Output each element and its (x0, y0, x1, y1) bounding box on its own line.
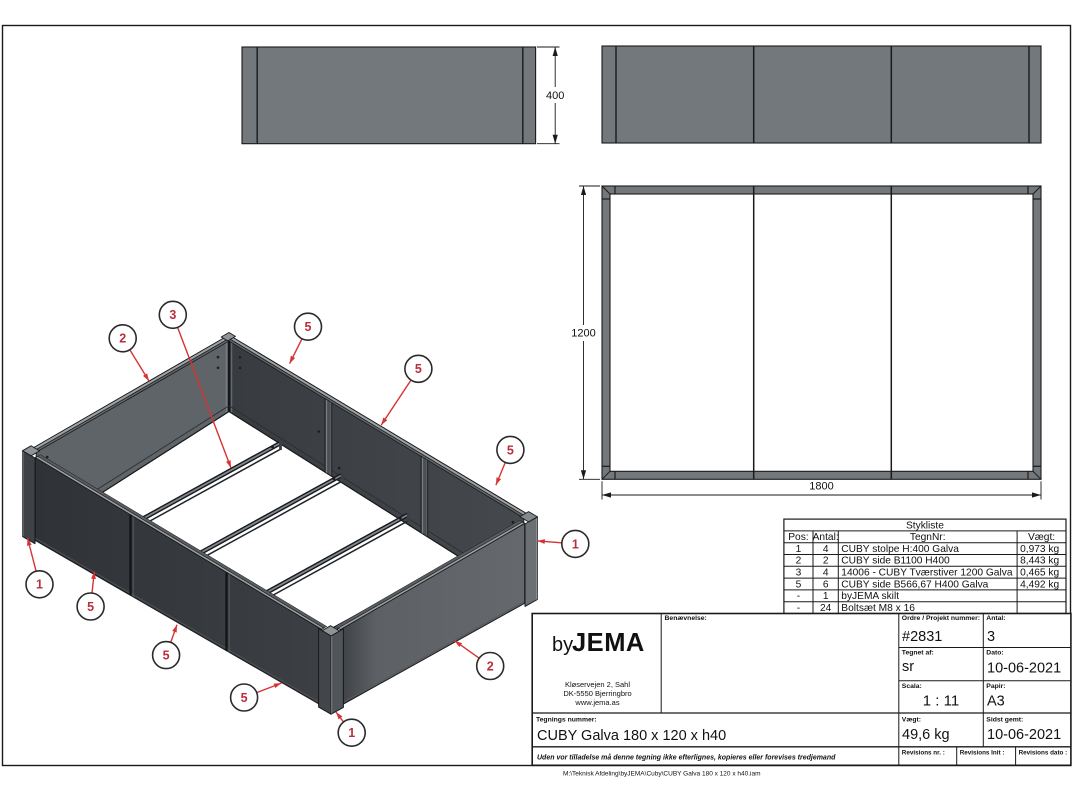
svg-text:-: - (797, 591, 800, 602)
svg-text:400: 400 (546, 90, 564, 102)
svg-text:Vægt:: Vægt: (902, 717, 921, 724)
svg-text:1: 1 (796, 544, 802, 555)
svg-text:2: 2 (119, 332, 126, 346)
svg-text:1: 1 (36, 578, 43, 592)
svg-text:Revisions Init :: Revisions Init : (960, 750, 1005, 757)
svg-text:2: 2 (796, 556, 802, 567)
svg-text:2: 2 (823, 556, 829, 567)
svg-text:5: 5 (415, 362, 422, 376)
svg-text:2: 2 (487, 659, 494, 673)
svg-text:Kløservejen 2, Sahl: Kløservejen 2, Sahl (565, 680, 630, 689)
svg-text:14006 - CUBY Tværstiver 1200 G: 14006 - CUBY Tværstiver 1200 Galva (841, 568, 1013, 579)
svg-text:CUBY side B1100 H400: CUBY side B1100 H400 (841, 556, 950, 567)
svg-text:Benævnelse:: Benævnelse: (665, 615, 707, 622)
svg-text:1200: 1200 (571, 328, 595, 340)
svg-text:Sidst gemt:: Sidst gemt: (986, 717, 1023, 724)
svg-text:Boltsæt M8 x 16: Boltsæt M8 x 16 (841, 603, 915, 614)
svg-text:Antal:: Antal: (813, 532, 839, 543)
svg-text:10-06-2021: 10-06-2021 (987, 661, 1061, 677)
svg-text:Ordre / Projekt nummer:: Ordre / Projekt nummer: (902, 615, 980, 622)
svg-text:Dato:: Dato: (986, 650, 1003, 657)
svg-text:Vægt:: Vægt: (1028, 532, 1055, 543)
svg-text:1: 1 (823, 591, 829, 602)
svg-text:sr: sr (902, 659, 914, 675)
svg-text:5: 5 (796, 579, 802, 590)
svg-text:Uden vor tilladelse må denne t: Uden vor tilladelse må denne tegning ikk… (537, 754, 836, 762)
svg-text:4: 4 (823, 568, 829, 579)
svg-text:3: 3 (169, 308, 176, 322)
svg-text:6: 6 (823, 579, 829, 590)
svg-text:TegnNr:: TegnNr: (910, 532, 946, 543)
svg-text:49,6 kg: 49,6 kg (902, 727, 950, 743)
svg-text:#2831: #2831 (902, 629, 942, 645)
svg-text:5: 5 (507, 443, 514, 457)
svg-text:CUBY side B566,67 H400 Galva: CUBY side B566,67 H400 Galva (841, 579, 988, 590)
svg-text:3: 3 (987, 629, 995, 645)
svg-text:1: 1 (348, 726, 355, 740)
svg-text:5: 5 (241, 691, 248, 705)
svg-text:5: 5 (163, 649, 170, 663)
svg-text:www.jema.as: www.jema.as (574, 698, 619, 707)
svg-text:Antal:: Antal: (986, 615, 1005, 622)
svg-text:JEMA: JEMA (572, 629, 645, 657)
svg-text:Papir:: Papir: (986, 683, 1005, 690)
svg-text:Tegnet af:: Tegnet af: (902, 650, 934, 657)
svg-text:4: 4 (823, 544, 829, 555)
svg-text:Tegnings nummer:: Tegnings nummer: (536, 717, 597, 724)
svg-text:by: by (552, 634, 573, 656)
svg-text:0,973 kg: 0,973 kg (1020, 544, 1059, 555)
svg-text:M:\Teknisk Afdeling\byJEMA\Cub: M:\Teknisk Afdeling\byJEMA\Cuby\CUBY Gal… (563, 771, 761, 778)
svg-text:byJEMA skilt: byJEMA skilt (841, 591, 899, 602)
svg-text:24: 24 (820, 603, 832, 614)
svg-text:4,492 kg: 4,492 kg (1020, 579, 1059, 590)
svg-text:Scala:: Scala: (902, 683, 922, 690)
svg-text:A3: A3 (987, 694, 1005, 710)
svg-text:1 : 11: 1 : 11 (923, 693, 959, 710)
svg-text:3: 3 (796, 568, 802, 579)
svg-text:-: - (797, 603, 800, 614)
svg-text:CUBY stolpe H:400 Galva: CUBY stolpe H:400 Galva (841, 544, 959, 555)
svg-text:1: 1 (572, 537, 579, 551)
svg-text:5: 5 (87, 600, 94, 614)
svg-text:Pos:: Pos: (788, 532, 808, 543)
svg-text:5: 5 (305, 320, 312, 334)
svg-text:1800: 1800 (809, 481, 833, 493)
svg-text:Stykliste: Stykliste (906, 520, 944, 531)
svg-text:DK-5550 Bjerringbro: DK-5550 Bjerringbro (563, 689, 631, 698)
svg-text:8,443 kg: 8,443 kg (1020, 556, 1059, 567)
svg-text:CUBY Galva 180 x 120 x h40: CUBY Galva 180 x 120 x h40 (537, 728, 726, 744)
svg-text:10-06-2021: 10-06-2021 (987, 727, 1061, 743)
svg-text:0,465 kg: 0,465 kg (1020, 568, 1059, 579)
svg-text:Revisions nr. :: Revisions nr. : (902, 750, 945, 757)
svg-text:Revisions dato :: Revisions dato : (1019, 750, 1068, 757)
